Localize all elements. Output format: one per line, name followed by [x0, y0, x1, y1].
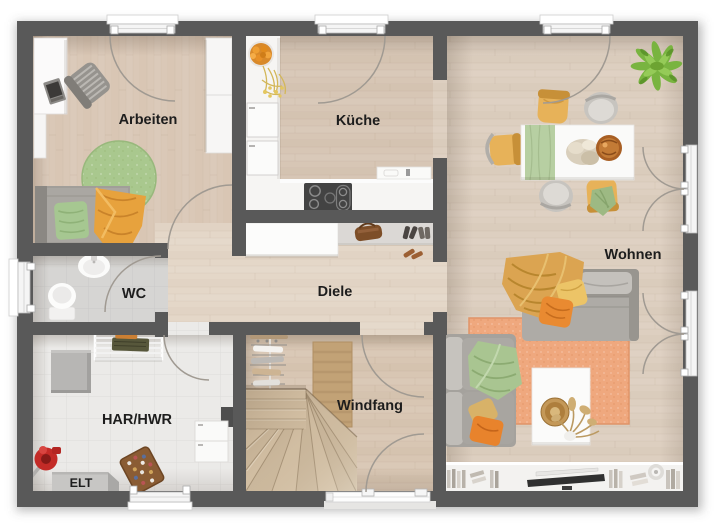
svg-text:Wohnen: Wohnen — [605, 247, 662, 263]
svg-text:Windfang: Windfang — [337, 398, 403, 414]
svg-text:HAR/HWR: HAR/HWR — [102, 412, 173, 428]
svg-text:Diele: Diele — [318, 284, 353, 300]
svg-text:ELT: ELT — [70, 476, 93, 490]
svg-text:WC: WC — [122, 286, 147, 302]
svg-text:Arbeiten: Arbeiten — [119, 112, 178, 128]
svg-text:Küche: Küche — [336, 113, 380, 129]
